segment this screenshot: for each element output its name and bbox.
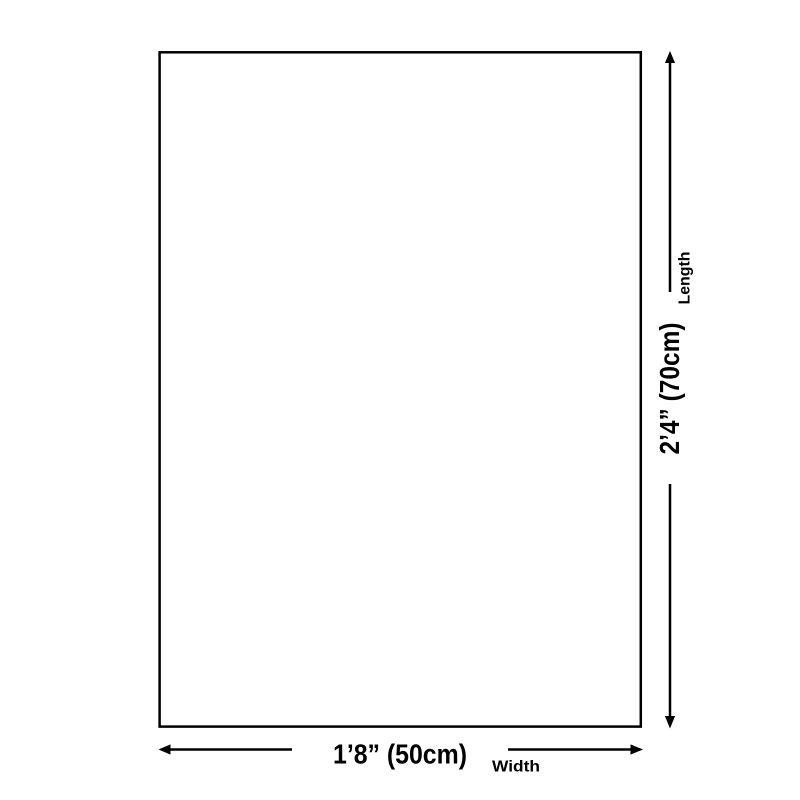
svg-text:Width: Width [492, 759, 540, 776]
svg-text:Length: Length [677, 252, 694, 305]
svg-text:1’8” (50cm): 1’8” (50cm) [333, 739, 467, 770]
svg-text:2’4” (70cm): 2’4” (70cm) [654, 323, 685, 455]
